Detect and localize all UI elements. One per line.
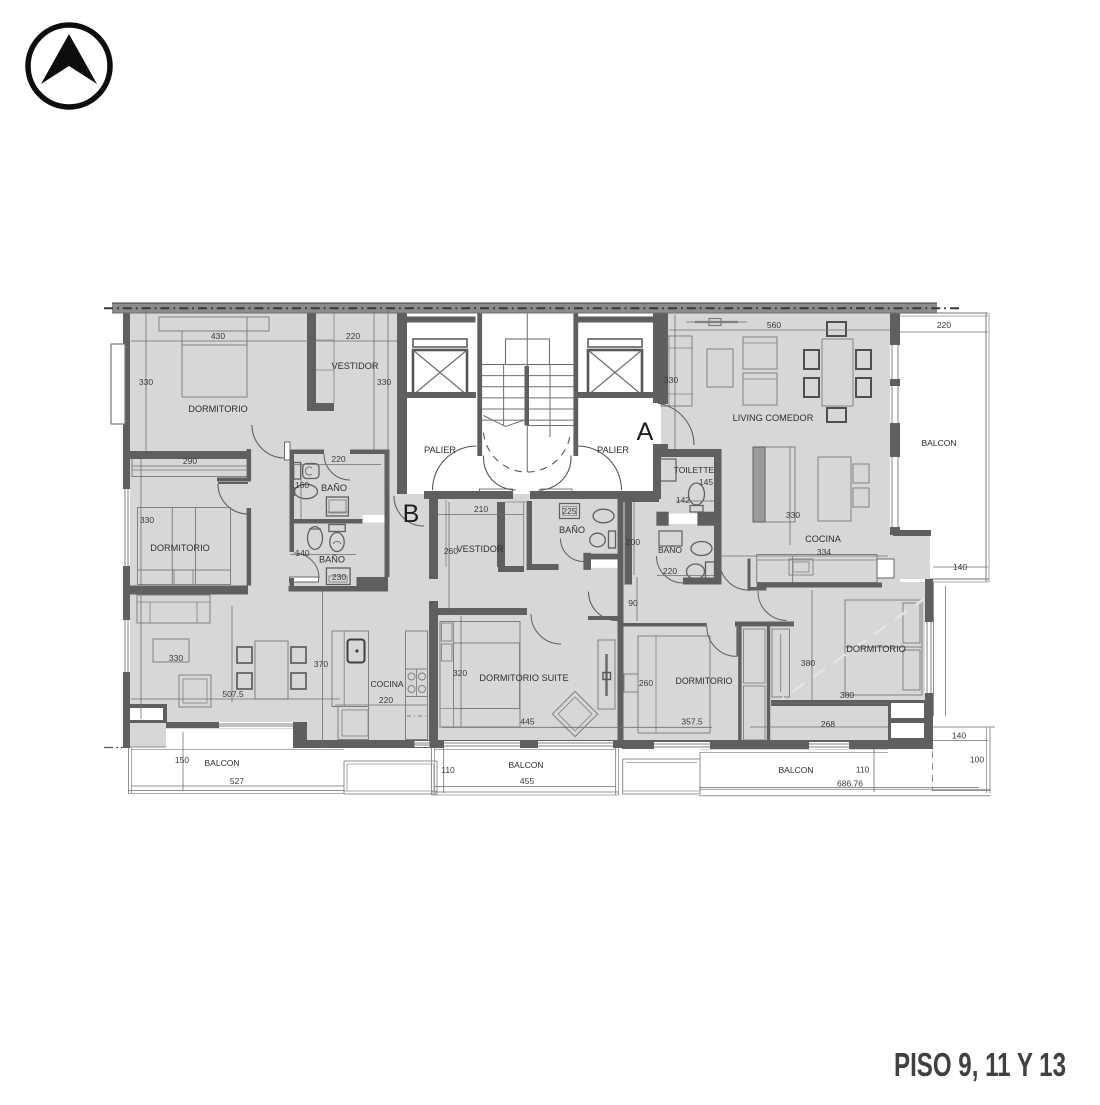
- svg-text:380: 380: [840, 690, 854, 700]
- svg-text:B: B: [403, 500, 420, 528]
- svg-text:560: 560: [767, 320, 781, 330]
- svg-text:DORMITORIO: DORMITORIO: [675, 676, 732, 686]
- svg-text:140: 140: [953, 562, 967, 572]
- svg-text:DORMITORIO: DORMITORIO: [188, 404, 248, 414]
- svg-text:330: 330: [139, 377, 153, 387]
- svg-text:A: A: [637, 418, 654, 446]
- svg-text:BALCON: BALCON: [922, 438, 957, 448]
- svg-text:220: 220: [663, 566, 677, 576]
- svg-text:BALCON: BALCON: [205, 758, 240, 768]
- svg-text:BAÑO: BAÑO: [319, 555, 345, 565]
- svg-text:COCINA: COCINA: [805, 534, 842, 544]
- svg-text:260: 260: [444, 546, 458, 556]
- svg-text:260: 260: [639, 678, 653, 688]
- svg-text:445: 445: [520, 717, 534, 727]
- svg-text:90: 90: [628, 598, 638, 608]
- svg-text:140: 140: [295, 548, 309, 558]
- svg-text:DORMITORIO: DORMITORIO: [846, 644, 906, 654]
- svg-text:220: 220: [331, 454, 345, 464]
- svg-text:140: 140: [952, 731, 966, 741]
- svg-text:110: 110: [441, 765, 455, 775]
- svg-text:110: 110: [856, 765, 870, 775]
- svg-text:370: 370: [314, 659, 328, 669]
- svg-text:380: 380: [801, 658, 815, 668]
- svg-text:507.5: 507.5: [222, 689, 244, 699]
- svg-text:PALIER: PALIER: [597, 445, 629, 455]
- svg-text:290: 290: [183, 456, 197, 466]
- svg-text:DORMITORIO: DORMITORIO: [150, 543, 210, 553]
- svg-text:210: 210: [474, 504, 488, 514]
- svg-text:330: 330: [786, 510, 800, 520]
- svg-text:320: 320: [453, 668, 467, 678]
- svg-text:145: 145: [699, 477, 713, 487]
- svg-text:BAÑO: BAÑO: [321, 483, 347, 493]
- svg-text:455: 455: [520, 776, 534, 786]
- svg-text:430: 430: [211, 331, 225, 341]
- svg-text:225: 225: [562, 506, 576, 516]
- svg-text:VESTIDOR: VESTIDOR: [457, 544, 504, 554]
- svg-text:357.5: 357.5: [681, 717, 703, 727]
- svg-text:220: 220: [937, 320, 951, 330]
- svg-text:142: 142: [676, 495, 690, 505]
- svg-text:PISO 9, 11 Y 13: PISO 9, 11 Y 13: [894, 1046, 1066, 1083]
- svg-text:DORMITORIO SUITE: DORMITORIO SUITE: [479, 673, 568, 683]
- svg-text:527: 527: [230, 776, 244, 786]
- svg-text:PALIER: PALIER: [424, 445, 456, 455]
- svg-text:LIVING COMEDOR: LIVING COMEDOR: [733, 413, 814, 423]
- svg-text:COCINA: COCINA: [370, 679, 403, 689]
- svg-text:330: 330: [140, 515, 154, 525]
- svg-text:160: 160: [295, 480, 309, 490]
- svg-text:100: 100: [970, 755, 984, 765]
- svg-text:268: 268: [821, 719, 835, 729]
- svg-text:BAÑO: BAÑO: [559, 525, 585, 535]
- svg-text:334: 334: [817, 547, 831, 557]
- svg-text:TOILETTE: TOILETTE: [674, 465, 715, 475]
- svg-text:150: 150: [175, 755, 189, 765]
- svg-text:BALCON: BALCON: [779, 765, 814, 775]
- svg-text:VESTIDOR: VESTIDOR: [332, 361, 379, 371]
- svg-text:686.76: 686.76: [837, 779, 863, 789]
- svg-text:330: 330: [377, 377, 391, 387]
- svg-text:330: 330: [664, 375, 678, 385]
- svg-text:330: 330: [169, 653, 183, 663]
- svg-text:200: 200: [626, 537, 640, 547]
- svg-text:BALCON: BALCON: [509, 760, 544, 770]
- svg-text:220: 220: [346, 331, 360, 341]
- svg-text:230: 230: [332, 572, 346, 582]
- svg-text:BAÑO: BAÑO: [658, 545, 682, 555]
- svg-text:220: 220: [379, 695, 393, 705]
